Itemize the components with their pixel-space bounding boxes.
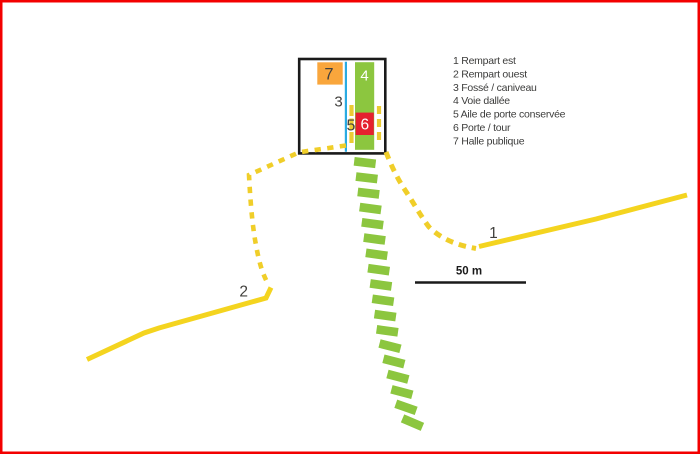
svg-text:3: 3 — [334, 93, 342, 110]
svg-text:5: 5 — [347, 117, 356, 134]
svg-text:4: 4 — [360, 68, 368, 85]
svg-text:2 Rempart ouest: 2 Rempart ouest — [453, 68, 527, 80]
svg-text:3 Fossé / caniveau: 3 Fossé / caniveau — [453, 82, 537, 94]
svg-text:7: 7 — [324, 66, 333, 84]
svg-text:1 Rempart est: 1 Rempart est — [453, 55, 516, 67]
svg-text:5 Aile de porte conservée: 5 Aile de porte conservée — [453, 109, 566, 121]
svg-text:6 Porte / tour: 6 Porte / tour — [453, 122, 511, 134]
svg-text:2: 2 — [239, 284, 248, 301]
svg-text:7 Halle publique: 7 Halle publique — [453, 135, 525, 147]
svg-text:1: 1 — [489, 225, 498, 242]
svg-text:50 m: 50 m — [456, 266, 482, 278]
svg-text:4 Voie dallée: 4 Voie dallée — [453, 95, 510, 107]
svg-text:6: 6 — [360, 117, 369, 134]
